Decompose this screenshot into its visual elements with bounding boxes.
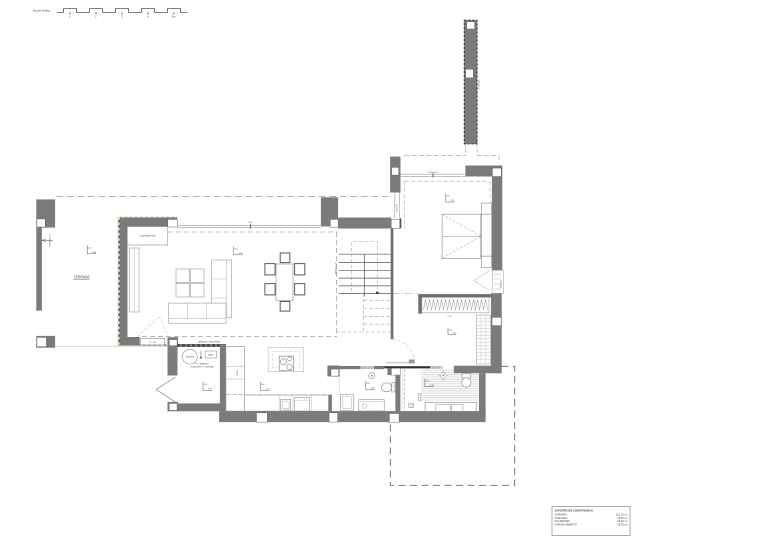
svg-text:VIVIENDA: VIVIENDA [555,512,567,516]
svg-text:0.60x2.20: 0.60x2.20 [397,204,399,212]
svg-text:FRIGO: FRIGO [237,370,239,376]
svg-text:28.35 m²: 28.35 m² [617,523,627,527]
svg-text:TENDEDERO Y CALDERA: TENDEDERO Y CALDERA [190,365,214,368]
svg-text:LAVADERO-TENDEDERO: LAVADERO-TENDEDERO [198,341,221,344]
svg-text:0.00: 0.00 [234,248,237,250]
svg-text:0.00: 0.00 [426,380,429,382]
svg-text:GUARDARROBA: GUARDARROBA [140,235,156,238]
svg-text:0.00: 0.00 [88,247,91,249]
svg-text:SUPERFICIES CONSTRUIDAS: SUPERFICIES CONSTRUIDAS [555,508,594,512]
svg-text:SOLARIUMS: SOLARIUMS [555,519,571,523]
svg-text:TERRAZA: TERRAZA [74,275,91,279]
svg-text:PORCHES: PORCHES [555,516,568,520]
svg-text:0.00: 0.00 [449,329,452,331]
svg-text:3.60x0.40: 3.60x0.40 [479,79,481,89]
svg-text:161.15 m²: 161.15 m² [616,512,628,516]
svg-text:0.00: 0.00 [204,384,207,386]
svg-text:Escala Gráfica: Escala Gráfica [33,8,50,12]
svg-text:LAVAD.: LAVAD. [208,353,214,356]
svg-text:0.00: 0.00 [261,384,264,386]
svg-text:CALDERA: CALDERA [186,356,195,359]
svg-text:15.20 m²: 15.20 m² [617,519,627,523]
svg-text:GARAJE ABIERTO: GARAJE ABIERTO [555,523,577,527]
svg-text:29.45 m²: 29.45 m² [617,516,627,520]
svg-text:0.00: 0.00 [366,383,369,385]
svg-text:0.90x2.10: 0.90x2.10 [501,281,503,288]
svg-text:VENTANAL 3.20: VENTANAL 3.20 [49,234,52,247]
svg-text:PL. LAVADERO: PL. LAVADERO [195,363,209,366]
svg-text:0.00: 0.00 [446,196,449,198]
svg-text:1.50x2.20: 1.50x2.20 [428,172,438,174]
svg-text:SUBE 17.75°: SUBE 17.75° [336,262,338,274]
svg-text:5m: 5m [172,15,176,19]
svg-text:CL. 7M: CL. 7M [149,342,156,344]
